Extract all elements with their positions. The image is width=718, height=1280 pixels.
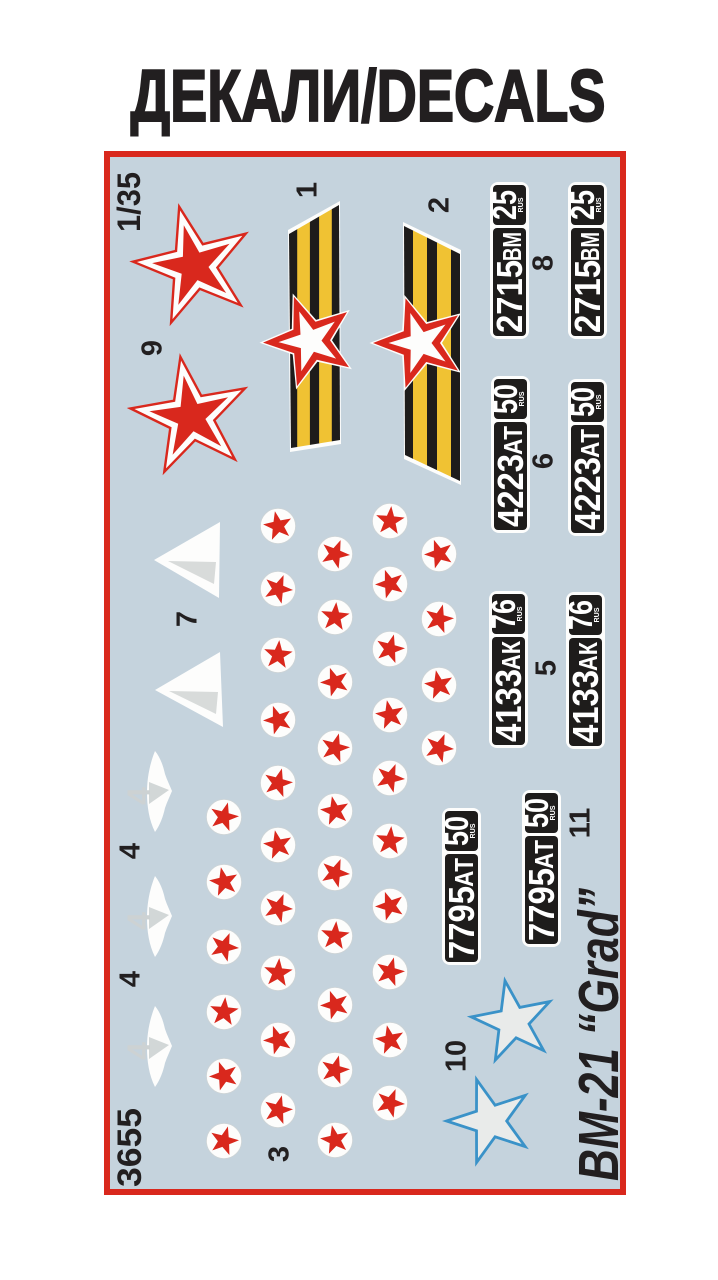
svg-text:1/35: 1/35 [111, 172, 147, 232]
svg-text:7: 7 [171, 611, 203, 627]
svg-text:2715: 2715 [567, 260, 608, 333]
svg-text:ДЕКАЛИ/DECALS: ДЕКАЛИ/DECALS [131, 56, 606, 137]
svg-text:6: 6 [527, 453, 559, 469]
svg-text:RUS: RUS [596, 197, 603, 212]
svg-text:4223: 4223 [490, 454, 531, 527]
svg-text:1: 1 [291, 182, 323, 198]
svg-text:2715: 2715 [489, 260, 530, 333]
svg-text:4: 4 [114, 843, 146, 859]
svg-text:RUS: RUS [517, 606, 524, 621]
svg-text:4133: 4133 [488, 669, 529, 742]
svg-text:2: 2 [423, 197, 455, 213]
svg-text:11: 11 [564, 808, 596, 839]
svg-text:7795: 7795 [441, 886, 482, 959]
svg-text:ВМ: ВМ [575, 232, 605, 261]
svg-text:3: 3 [263, 1146, 295, 1162]
svg-text:4: 4 [114, 971, 146, 987]
svg-text:4: 4 [121, 1042, 157, 1060]
svg-text:АТ: АТ [449, 858, 479, 887]
svg-text:АК: АК [573, 642, 603, 671]
svg-text:4: 4 [121, 787, 157, 805]
svg-text:4223: 4223 [567, 457, 608, 530]
svg-text:RUS: RUS [518, 197, 525, 212]
svg-text:BM-21 “Grad”: BM-21 “Grad” [567, 888, 631, 1181]
svg-text:АК: АК [496, 641, 526, 670]
svg-text:RUS: RUS [470, 823, 477, 838]
svg-text:ВМ: ВМ [497, 232, 527, 261]
svg-text:RUS: RUS [596, 394, 603, 409]
svg-text:АТ: АТ [575, 429, 605, 458]
svg-text:АТ: АТ [529, 840, 559, 869]
svg-text:7795: 7795 [521, 868, 562, 941]
svg-text:3655: 3655 [111, 1108, 149, 1187]
svg-text:4133: 4133 [565, 670, 606, 743]
svg-text:RUS: RUS [594, 607, 601, 622]
svg-text:4: 4 [121, 912, 157, 930]
svg-text:RUS: RUS [519, 391, 526, 406]
svg-text:АТ: АТ [498, 426, 528, 455]
svg-text:10: 10 [440, 1040, 472, 1072]
svg-text:RUS: RUS [550, 805, 557, 820]
svg-text:8: 8 [527, 255, 559, 271]
svg-text:9: 9 [136, 340, 168, 356]
svg-text:5: 5 [530, 660, 562, 676]
